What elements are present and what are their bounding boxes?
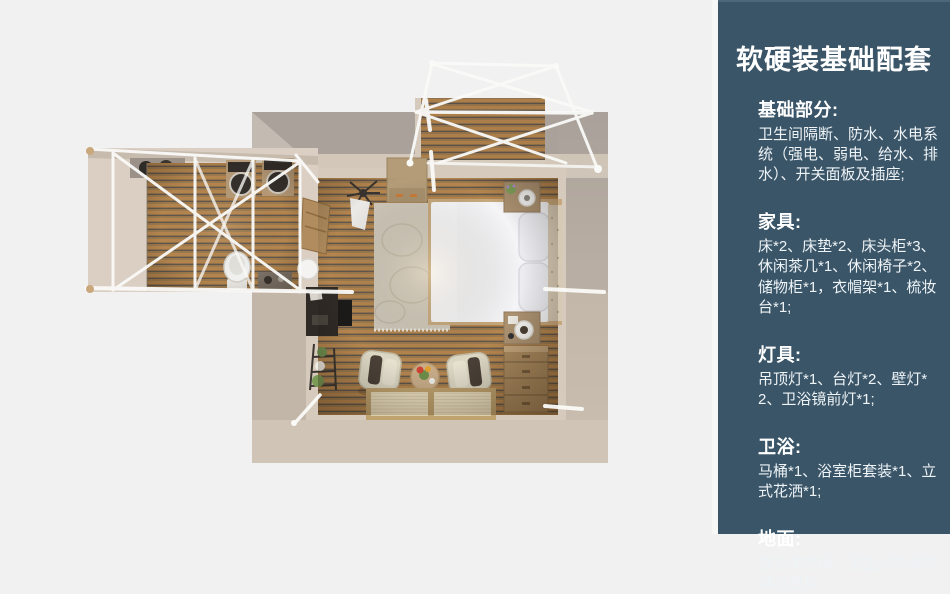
- spec-section: 灯具: 吊顶灯*1、台灯*2、壁灯*2、卫浴镜前灯*1;: [758, 341, 938, 410]
- section-body: 马桶*1、浴室柜套装*1、立式花洒*1;: [758, 462, 938, 502]
- floor-plan-render: [0, 0, 715, 534]
- section-body: 吊顶灯*1、台灯*2、壁灯*2、卫浴镜前灯*1;: [758, 370, 938, 410]
- spec-section: 家具: 床*2、床垫*2、床头柜*3、休闲茶几*1、休闲椅子*2、储物柜*1，衣…: [758, 208, 938, 317]
- section-heading: 家具:: [758, 208, 938, 234]
- section-body: 床*2、床垫*2、床头柜*3、休闲茶几*1、休闲椅子*2、储物柜*1，衣帽架*1…: [758, 237, 938, 317]
- floor-plan-svg: [0, 0, 715, 534]
- section-heading: 地面:: [758, 525, 938, 551]
- section-body: 卫生间隔断、防水、水电系统（强电、弱电、给水、排水）、开关面板及插座;: [758, 125, 938, 185]
- spec-section: 卫浴: 马桶*1、浴室柜套装*1、立式花洒*1;: [758, 433, 938, 502]
- section-heading: 灯具:: [758, 341, 938, 367]
- section-heading: 基础部分:: [758, 96, 938, 122]
- spec-panel: 软硬装基础配套 基础部分: 卫生间隔断、防水、水电系统（强电、弱电、给水、排水）…: [718, 0, 950, 534]
- section-heading: 卫浴:: [758, 433, 938, 459]
- bedroom-furniture: [298, 158, 562, 420]
- page-canvas: 软硬装基础配套 基础部分: 卫生间隔断、防水、水电系统（强电、弱电、给水、排水）…: [0, 0, 950, 534]
- panel-title: 软硬装基础配套: [724, 45, 944, 76]
- spec-section: 地面: 强化木地板、卫生间防滑防潮石塑板;: [758, 525, 938, 594]
- spec-section: 基础部分: 卫生间隔断、防水、水电系统（强电、弱电、给水、排水）、开关面板及插座…: [758, 96, 938, 185]
- section-body: 强化木地板、卫生间防滑防潮石塑板;: [758, 554, 938, 594]
- spec-sections: 基础部分: 卫生间隔断、防水、水电系统（强电、弱电、给水、排水）、开关面板及插座…: [758, 96, 938, 594]
